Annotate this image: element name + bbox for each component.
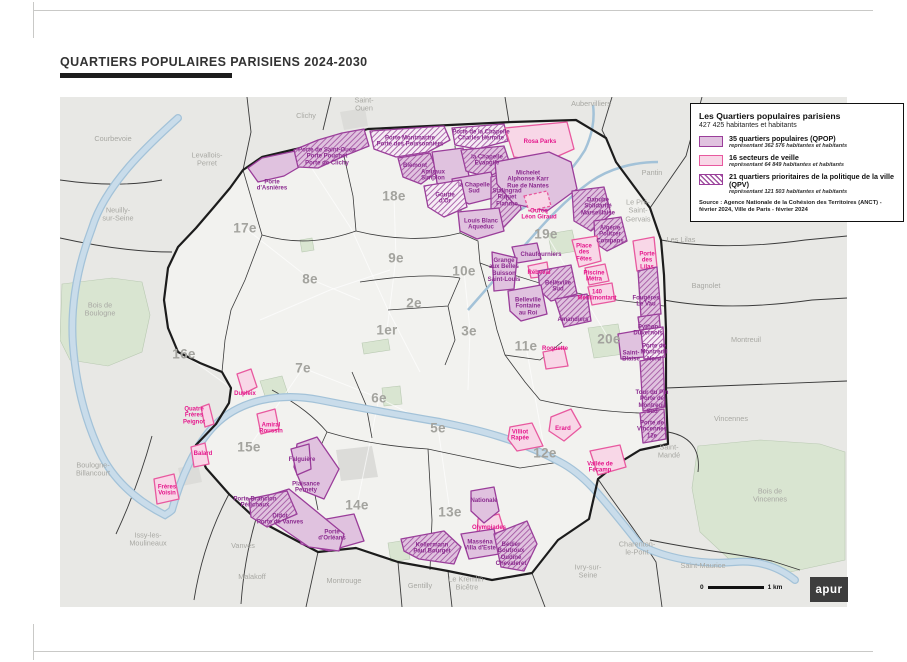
park-area [382,386,402,406]
title-underline [60,73,232,78]
quartier-hatch [640,357,665,411]
frame-line-top [33,10,873,11]
legend-item-sub: représentant 64 849 habitantes et habita… [729,162,844,168]
frame-tick-bottom-left [33,624,34,660]
legend-item-label: 21 quartiers prioritaires de la politiqu… [729,173,895,189]
frame-tick-top-left [33,2,34,38]
scale-bar: 0 1 km [700,584,782,591]
quartier-polygon-veille [154,474,179,504]
quartier-hatch [640,409,666,443]
quartier-polygon-veille [191,443,209,467]
quartier-hatch [638,267,661,317]
page-title: QUARTIERS POPULAIRES PARISIENS 2024-2030 [60,55,368,69]
legend-item-sub: représentant 121 503 habitantes et habit… [729,189,895,195]
quartier-polygon-veille [257,409,279,434]
scale-bar-line [708,586,764,589]
quartier-hatch [641,327,665,359]
legend-item-label: 35 quartiers populaires (QPOP) [729,135,847,143]
veille-swatch [699,155,723,166]
scale-zero: 0 [700,584,704,591]
qpv-hatch-swatch [699,174,723,185]
quartier-polygon-veille [543,348,568,369]
legend-subtitle: 427 425 habitantes et habitants [699,122,895,129]
legend-item-qpv: 21 quartiers prioritaires de la politiqu… [699,173,895,195]
quartier-polygon-veille [633,237,657,271]
legend-source: Source : Agence Nationale de la Cohésion… [699,200,895,214]
quartier-polygon-veille [585,264,609,285]
apur-logo: apur [810,577,848,602]
urban-block [336,446,378,481]
quartier-polygon-qpop [492,252,517,291]
legend-item-label: 16 secteurs de veille [729,154,844,162]
park-area [300,238,314,252]
quartier-polygon-veille [588,283,615,305]
frame-line-bottom [33,651,873,652]
scale-unit: 1 km [768,584,783,591]
legend: Les Quartiers populaires parisiens 427 4… [690,103,904,222]
legend-item-qpop: 35 quartiers populaires (QPOP) représent… [699,135,895,149]
legend-title: Les Quartiers populaires parisiens [699,111,895,121]
legend-item-veille: 16 secteurs de veille représentant 64 84… [699,154,895,168]
quartier-polygon-qpop [618,330,644,359]
legend-item-sub: représentant 362 576 habitantes et habit… [729,143,847,149]
qpop-swatch [699,136,723,147]
